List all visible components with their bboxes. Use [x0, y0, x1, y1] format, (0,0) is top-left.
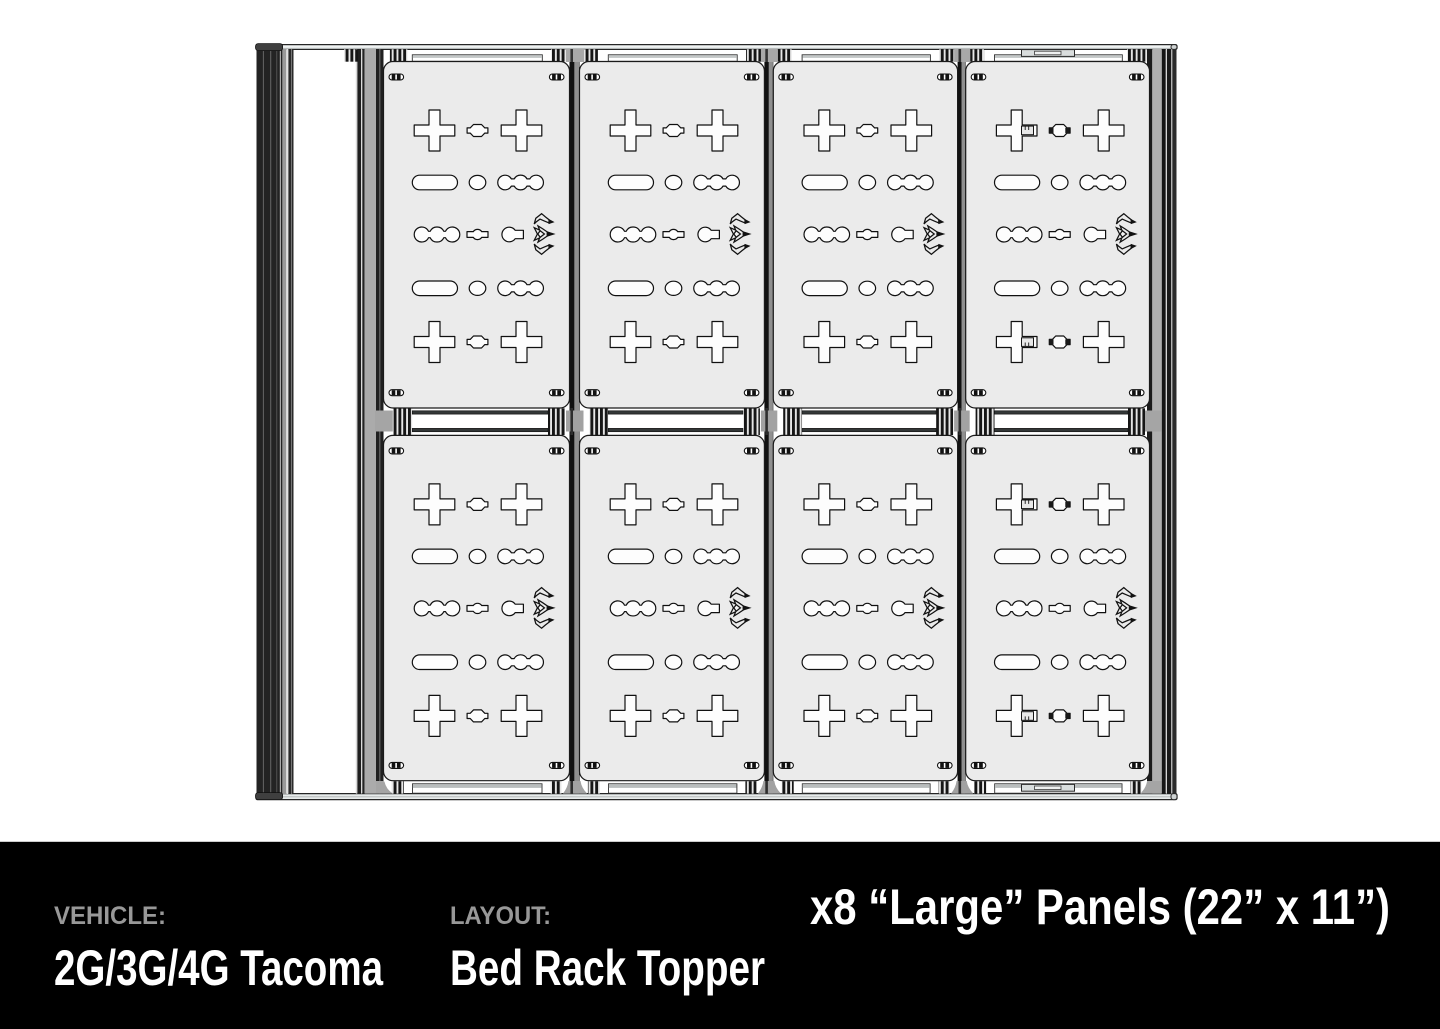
svg-text:2G/3G/4G Tacoma: 2G/3G/4G Tacoma — [54, 940, 384, 996]
svg-text:VEHICLE:: VEHICLE: — [54, 902, 166, 930]
svg-text:LAYOUT:: LAYOUT: — [450, 902, 551, 930]
svg-text:Bed Rack Topper: Bed Rack Topper — [450, 940, 765, 996]
svg-text:x8 “Large” Panels (22” x 11”): x8 “Large” Panels (22” x 11”) — [810, 879, 1390, 935]
